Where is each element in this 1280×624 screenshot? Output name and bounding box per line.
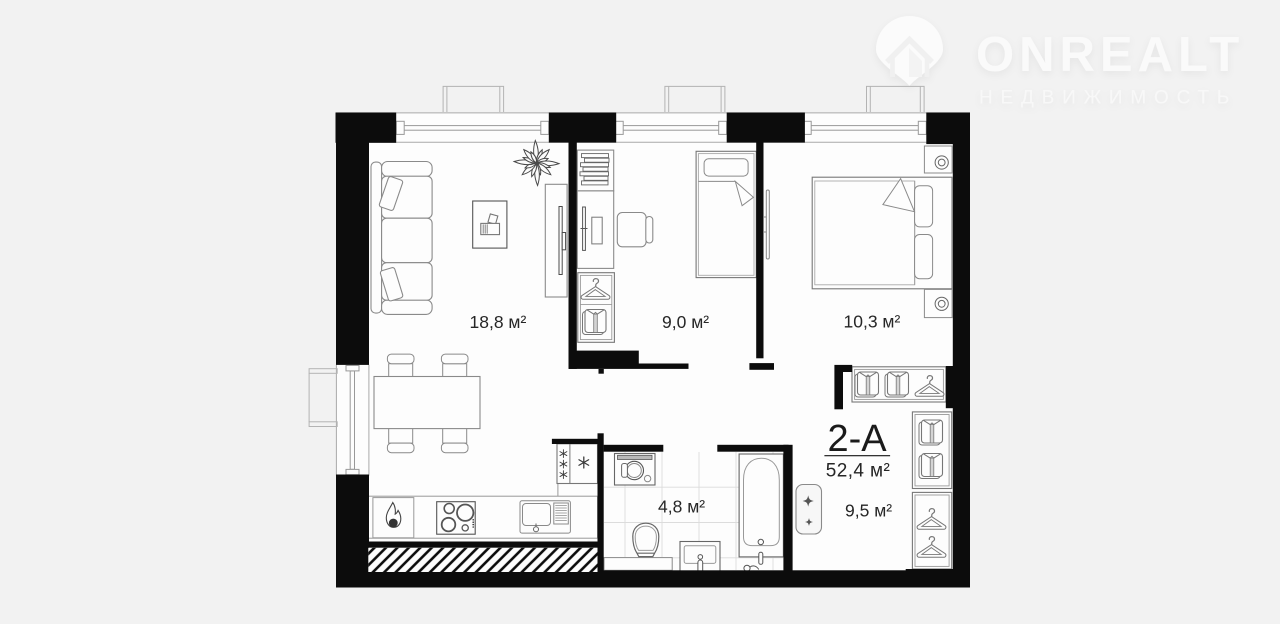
svg-text:ONREALT: ONREALT bbox=[976, 28, 1244, 82]
svg-text:2-А: 2-А bbox=[828, 418, 888, 460]
svg-text:52,4 м²: 52,4 м² bbox=[826, 461, 890, 482]
svg-text:НЕДВИЖИМОСТЬ: НЕДВИЖИМОСТЬ bbox=[979, 88, 1237, 109]
svg-text:9,0 м²: 9,0 м² bbox=[662, 312, 709, 332]
svg-text:4,8 м²: 4,8 м² bbox=[658, 497, 705, 517]
svg-text:10,3 м²: 10,3 м² bbox=[844, 312, 901, 332]
svg-text:9,5 м²: 9,5 м² bbox=[845, 501, 892, 521]
svg-text:18,8 м²: 18,8 м² bbox=[470, 312, 527, 332]
